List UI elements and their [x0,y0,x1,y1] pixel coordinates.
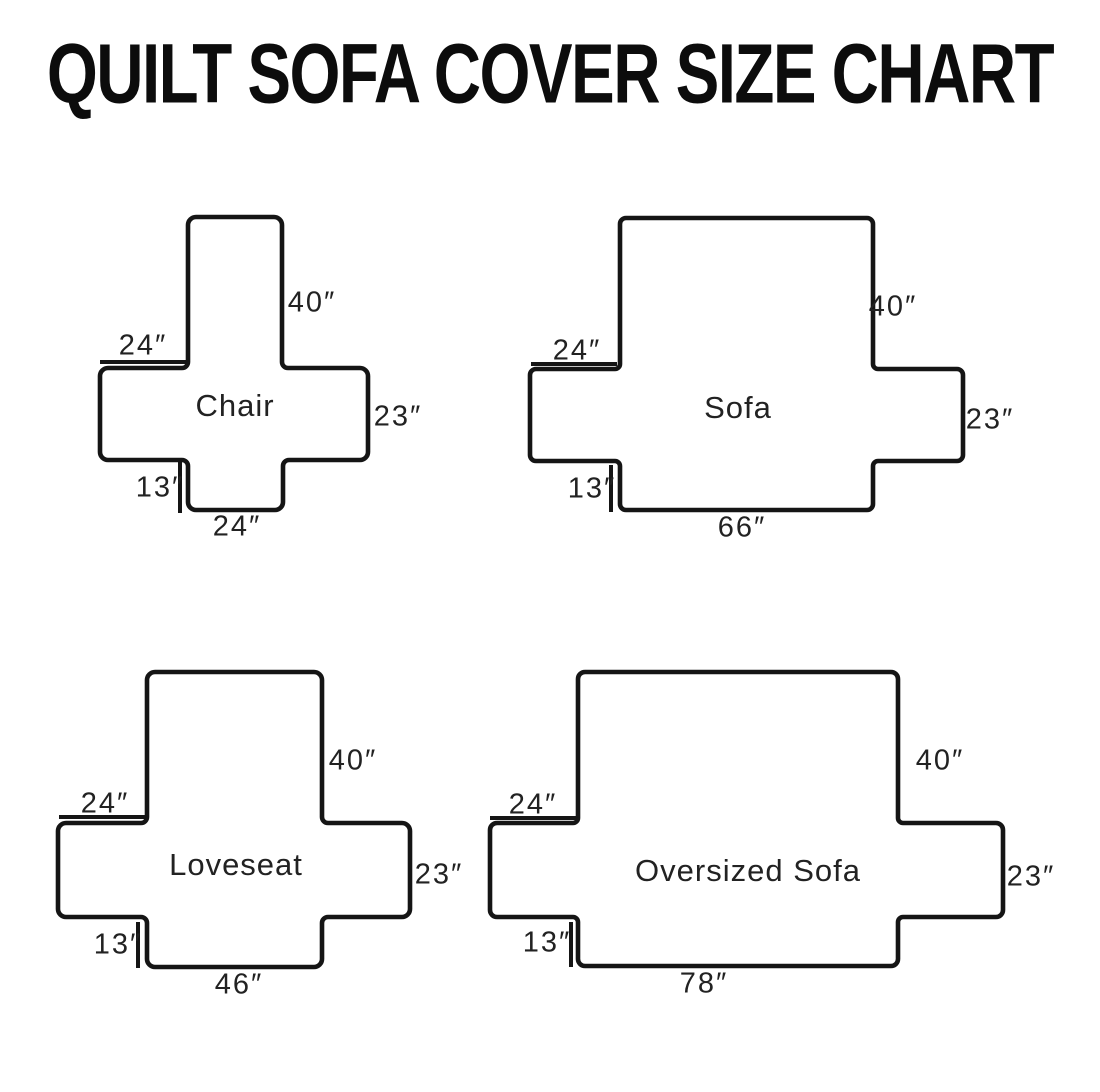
loveseat-side-height-label: 23″ [415,859,464,892]
oversized-sofa-arm-width-label: 24″ [509,789,558,822]
page-root: QUILT SOFA COVER SIZE CHART 40″ 24″ Chai… [0,0,1100,1092]
chair-base-width-label: 24″ [213,511,262,544]
oversized-sofa-name-label: Oversized Sofa [635,853,861,889]
oversized-sofa-skirt-label: 13″ [523,927,572,960]
loveseat-back-height-label: 40″ [329,745,378,778]
chair-back-height-label: 40″ [288,287,337,320]
sofa-skirt-label: 13″ [568,473,617,506]
loveseat-arm-width-label: 24″ [81,788,130,821]
oversized-sofa-base-width-label: 78″ [680,968,729,1001]
oversized-sofa-back-height-label: 40″ [916,745,965,778]
oversized-sofa-side-height-label: 23″ [1007,861,1056,894]
sofa-name-label: Sofa [704,390,772,426]
chair-arm-width-label: 24″ [119,330,168,363]
loveseat-skirt-label: 13″ [94,929,143,962]
chair-skirt-label: 13″ [136,472,185,505]
sofa-back-height-label: 40″ [869,291,918,324]
chair-side-height-label: 23″ [374,401,423,434]
sofa-arm-width-label: 24″ [553,335,602,368]
loveseat-base-width-label: 46″ [215,969,264,1002]
sofa-base-width-label: 66″ [718,512,767,545]
chair-name-label: Chair [195,388,274,424]
loveseat-name-label: Loveseat [169,847,303,883]
sofa-side-height-label: 23″ [966,404,1015,437]
